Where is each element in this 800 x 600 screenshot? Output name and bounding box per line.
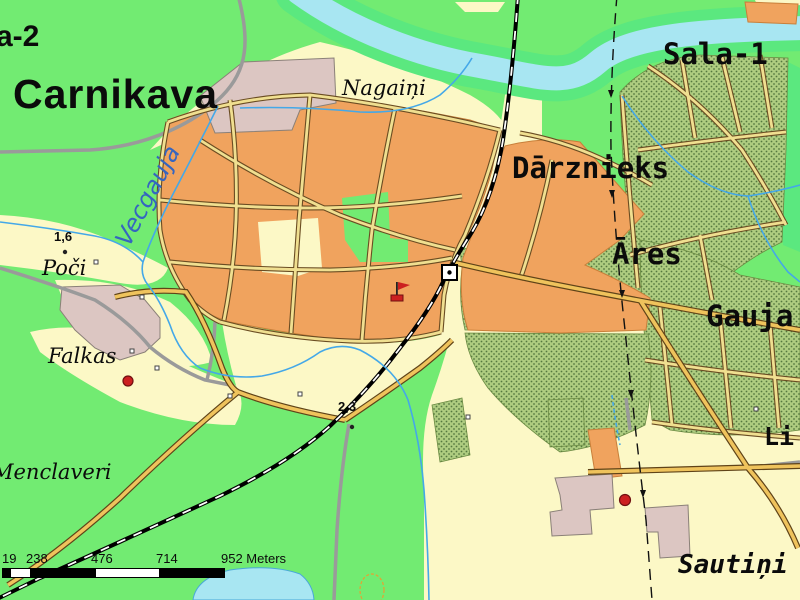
elevation-dot [350, 425, 354, 429]
scalebar-tick: 714 [156, 552, 178, 565]
map-canvas[interactable]: a-2 Carnikava Sala-1 Nagaiņi Dārznieks Ā… [0, 0, 800, 600]
scalebar-tick: 19 [2, 552, 16, 565]
railway-station-icon [442, 265, 457, 280]
place-label-carnikava: Carnikava [13, 74, 218, 115]
place-label-sala-2: a-2 [0, 22, 39, 52]
place-label-sala-1: Sala-1 [663, 40, 768, 69]
place-label-falkas: Falkas [48, 346, 116, 367]
place-label-menclaveri: Menclaveri [0, 462, 112, 483]
elevation-label: 2,3 [338, 400, 356, 413]
place-label-sautini: Sautiņi [678, 552, 788, 578]
scalebar-tick: 238 [26, 552, 48, 565]
place-label-poci: Poči [42, 258, 86, 279]
place-label-ares: Āres [612, 240, 682, 269]
scalebar-segment [96, 569, 159, 577]
scalebar-unit-label: 952 Meters [221, 552, 286, 565]
poi-dot [620, 495, 631, 506]
poi-dot [123, 376, 133, 386]
scalebar-segment [11, 569, 30, 577]
elevation-dot [63, 250, 67, 254]
place-label-li: Li [764, 424, 794, 449]
scalebar-tick: 476 [91, 552, 113, 565]
place-label-nagaini: Nagaiņi [342, 78, 426, 99]
place-label-gauja: Gauja [706, 302, 793, 331]
scalebar [2, 568, 225, 578]
elevation-label: 1,6 [54, 230, 72, 243]
place-label-darznieks: Dārznieks [512, 154, 669, 183]
